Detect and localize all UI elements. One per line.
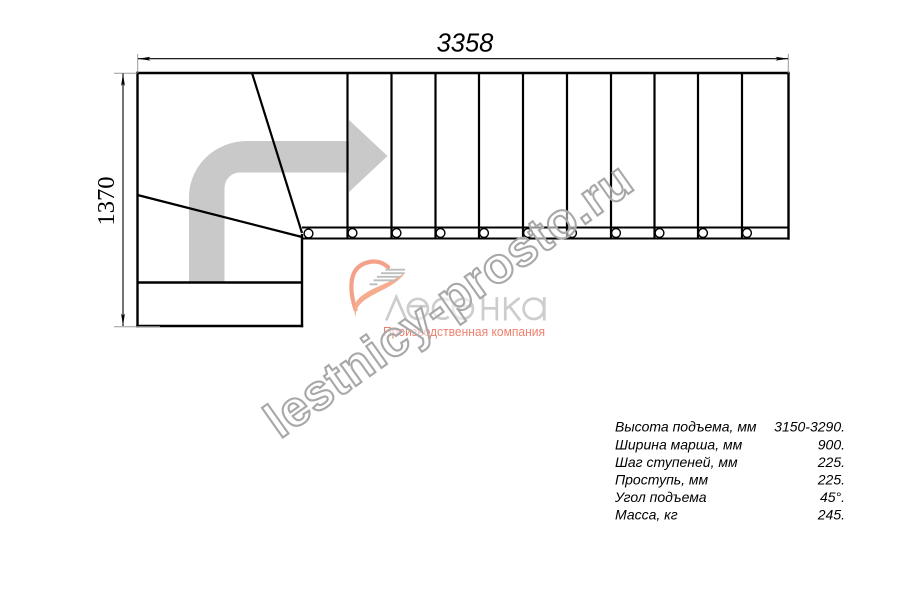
svg-text:3358: 3358 (437, 30, 495, 58)
svg-text:lestnicy-prosto.ru: lestnicy-prosto.ru (254, 151, 643, 448)
svg-text:900.: 900. (818, 436, 845, 452)
svg-text:45°.: 45°. (820, 489, 845, 505)
svg-text:Ширина марша, мм: Ширина марша, мм (615, 436, 743, 452)
svg-text:225.: 225. (817, 454, 845, 470)
svg-text:225.: 225. (817, 472, 845, 488)
svg-text:3150-3290.: 3150-3290. (774, 419, 845, 435)
svg-text:Высота подъема, мм: Высота подъема, мм (615, 419, 757, 435)
svg-text:Угол подъема: Угол подъема (614, 489, 707, 505)
svg-text:245.: 245. (817, 507, 845, 523)
svg-text:1370: 1370 (93, 176, 120, 225)
svg-text:Шаг ступеней, мм: Шаг ступеней, мм (615, 454, 738, 470)
svg-text:Масса, кг: Масса, кг (615, 507, 678, 523)
svg-text:Проступь, мм: Проступь, мм (615, 472, 709, 488)
